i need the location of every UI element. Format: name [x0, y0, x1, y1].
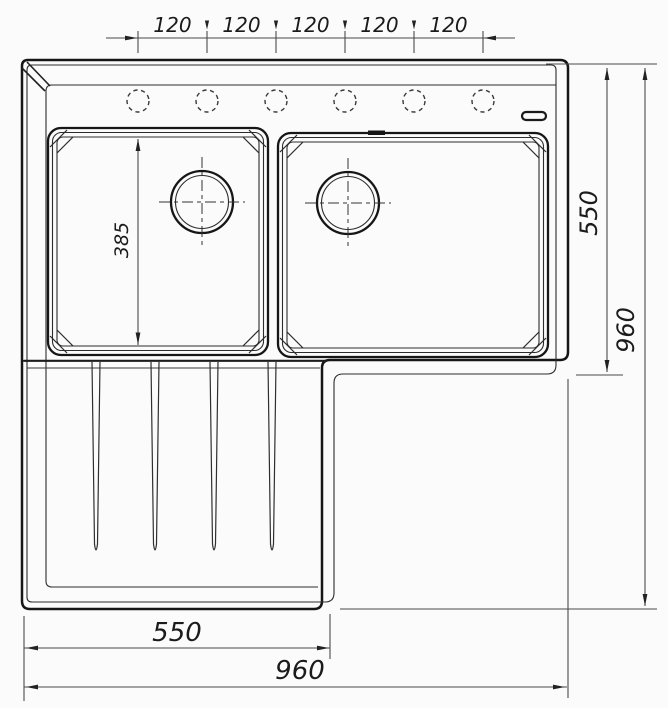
- bowl-corner-chamfer: [243, 137, 259, 153]
- drainboard-groove: [151, 362, 159, 550]
- dim-arrowhead: [412, 21, 416, 30]
- dim-top-pitch-label: 120: [360, 13, 398, 37]
- dim-arrowhead: [205, 21, 209, 30]
- faucet-hole: [196, 90, 218, 112]
- right-drain: [305, 158, 391, 249]
- bowl-corner-chamfer: [287, 332, 303, 348]
- faucet-hole: [127, 90, 149, 112]
- bowl-corner-chamfer: [287, 142, 303, 158]
- drainboard-grooves: [92, 362, 276, 550]
- bowl-corner-chamfer: [523, 332, 539, 348]
- drainboard-groove: [92, 362, 100, 550]
- bowl-corner-chamfer: [523, 142, 539, 158]
- corner-chamfer-a: [22, 68, 45, 91]
- corner-chamfer-b: [27, 62, 50, 86]
- faucet-hole: [403, 90, 425, 112]
- bowl-corner-chamfer: [243, 330, 259, 346]
- bowl-corner-chamfer: [57, 137, 73, 153]
- faucet-hole: [472, 90, 494, 112]
- dim-top-pitch-label: 120: [153, 13, 191, 37]
- right-bowl: [278, 133, 548, 357]
- drawing-page: 120120120120120 385 550 960 550 960: [0, 0, 668, 708]
- dim-bottom-left-label: 550: [152, 618, 202, 648]
- dim-arrowhead: [605, 68, 610, 80]
- bowl-corner-chamfer: [57, 330, 73, 346]
- dim-arrowhead: [343, 21, 347, 30]
- faucet-hole: [334, 90, 356, 112]
- dim-right-total-label: 960: [612, 307, 640, 353]
- dim-top-pitch-label: 120: [429, 13, 467, 37]
- dim-arrowhead: [136, 333, 141, 345]
- outline-inner: [27, 65, 556, 602]
- dim-arrowhead: [274, 21, 278, 30]
- dim-bowl-depth: 385: [111, 139, 138, 345]
- dim-arrowhead: [605, 360, 610, 372]
- dim-top-pitch-label: 120: [222, 13, 260, 37]
- left-drain: [159, 157, 245, 248]
- dim-top-pitch-label: 120: [291, 13, 329, 37]
- sink-drawing-svg: 120120120120120 385 550 960 550 960: [0, 0, 668, 708]
- dim-arrowhead: [643, 68, 648, 80]
- dim-arrowhead: [125, 36, 137, 41]
- dim-arrowhead: [553, 685, 565, 690]
- dim-right-side: 550 960: [340, 64, 657, 609]
- dim-top-pitch: 120120120120120: [106, 13, 515, 53]
- logo-mark: [522, 112, 546, 120]
- dim-bottom: 550 960: [24, 379, 568, 701]
- dim-arrowhead: [643, 594, 648, 606]
- dim-bowl-depth-label: 385: [111, 222, 133, 258]
- left-bowl: [48, 128, 268, 355]
- dim-arrowhead: [484, 36, 496, 41]
- dim-arrowhead: [26, 646, 38, 651]
- dim-arrowhead: [317, 646, 329, 651]
- drainboard-groove: [268, 362, 276, 550]
- overflow-notch: [368, 131, 385, 136]
- drainboard-groove: [210, 362, 218, 550]
- dim-arrowhead: [26, 685, 38, 690]
- faucet-hole: [265, 90, 287, 112]
- dim-arrowhead: [136, 139, 141, 151]
- dim-bottom-total-label: 960: [275, 656, 325, 686]
- rim-line: [46, 85, 556, 587]
- dim-right-upper-label: 550: [575, 190, 603, 236]
- faucet-holes: [127, 90, 494, 112]
